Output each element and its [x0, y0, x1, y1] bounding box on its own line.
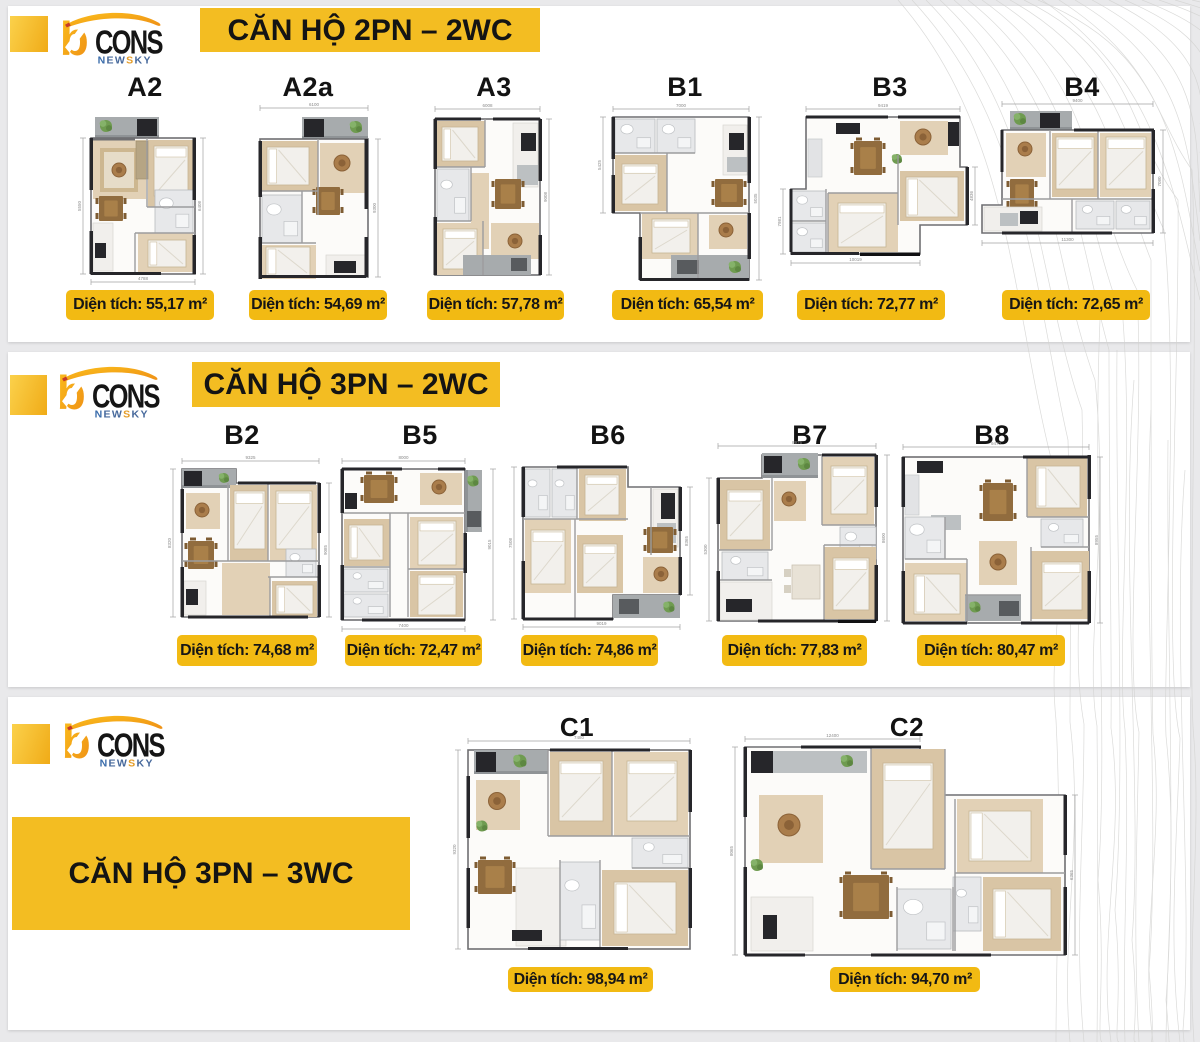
svg-text:9325: 9325 [245, 455, 256, 460]
svg-text:10019: 10019 [849, 257, 862, 262]
svg-text:7080: 7080 [1157, 176, 1162, 187]
svg-text:8600: 8600 [881, 532, 886, 543]
svg-text:NEWSKY: NEWSKY [100, 757, 154, 767]
svg-text:6365: 6365 [1069, 869, 1074, 880]
svg-text:9400: 9400 [1072, 98, 1083, 103]
svg-text:6408: 6408 [197, 200, 202, 211]
svg-text:8320: 8320 [167, 537, 172, 548]
svg-text:9320: 9320 [452, 844, 457, 855]
svg-text:NEWSKY: NEWSKY [98, 54, 152, 64]
svg-text:6008: 6008 [482, 103, 493, 108]
svg-text:7480: 7480 [574, 735, 585, 740]
svg-text:8000: 8000 [398, 455, 409, 460]
svg-text:9419: 9419 [878, 103, 889, 108]
svg-text:7000: 7000 [676, 103, 687, 108]
svg-text:5035: 5035 [753, 193, 758, 204]
svg-text:9015: 9015 [487, 539, 492, 550]
svg-text:9008: 9008 [543, 191, 548, 202]
svg-text:8365: 8365 [684, 535, 689, 546]
svg-text:7508: 7508 [508, 537, 513, 548]
svg-text:9019: 9019 [596, 621, 607, 626]
svg-text:7981: 7981 [777, 216, 782, 227]
svg-text:6100: 6100 [309, 102, 320, 107]
svg-text:12400: 12400 [826, 733, 839, 738]
svg-text:9470: 9470 [991, 441, 1002, 446]
svg-text:11300: 11300 [1061, 237, 1074, 242]
svg-text:7400: 7400 [398, 623, 409, 628]
svg-text:5425: 5425 [597, 159, 602, 170]
svg-text:8065: 8065 [729, 845, 734, 856]
svg-text:4788: 4788 [138, 276, 149, 281]
svg-text:5300: 5300 [703, 544, 708, 555]
svg-text:8955: 8955 [1094, 534, 1099, 545]
svg-text:8975: 8975 [792, 440, 803, 445]
svg-text:9300: 9300 [372, 202, 377, 213]
svg-text:5550: 5550 [77, 200, 82, 211]
svg-text:NEWSKY: NEWSKY [95, 408, 149, 418]
